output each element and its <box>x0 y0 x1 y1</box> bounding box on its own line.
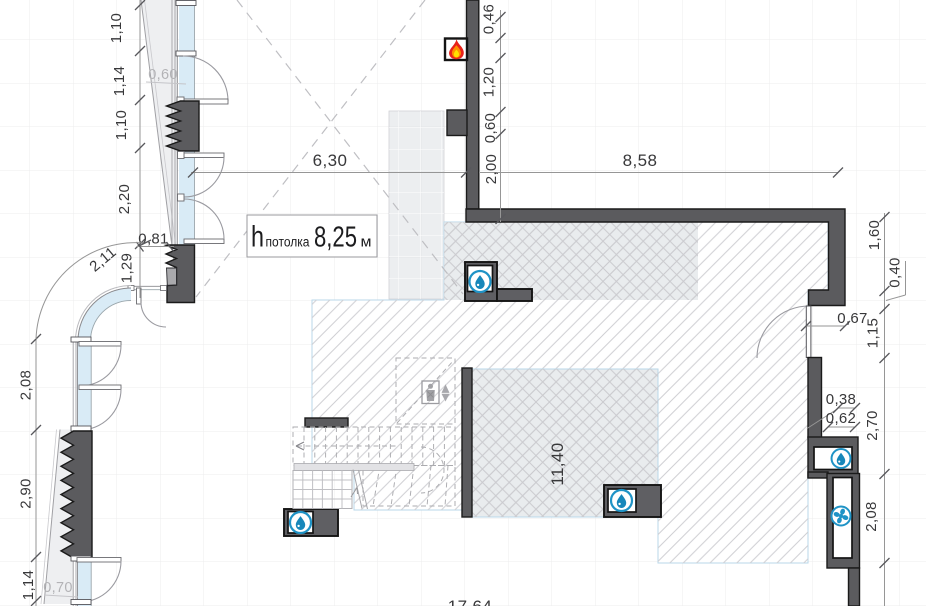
svg-text:17,64: 17,64 <box>448 597 493 606</box>
svg-text:0,60: 0,60 <box>148 67 177 83</box>
svg-text:м: м <box>361 235 372 251</box>
svg-text:0,60: 0,60 <box>482 113 499 143</box>
svg-text:6,30: 6,30 <box>313 151 348 170</box>
svg-text:2,08: 2,08 <box>863 501 880 531</box>
svg-text:1,29: 1,29 <box>119 253 136 283</box>
svg-text:h: h <box>251 221 264 254</box>
svg-text:1,14: 1,14 <box>111 66 128 96</box>
svg-text:8,58: 8,58 <box>623 151 658 170</box>
svg-text:1,14: 1,14 <box>20 570 37 600</box>
svg-text:2,08: 2,08 <box>18 370 35 400</box>
svg-text:11,40: 11,40 <box>548 442 567 485</box>
svg-text:8,25: 8,25 <box>314 222 357 254</box>
svg-text:0,40: 0,40 <box>887 257 904 287</box>
svg-text:2,70: 2,70 <box>864 410 881 440</box>
svg-text:2,00: 2,00 <box>483 154 500 184</box>
svg-text:1,10: 1,10 <box>113 110 130 140</box>
svg-text:0,38: 0,38 <box>826 391 856 408</box>
svg-text:0,46: 0,46 <box>481 4 498 34</box>
svg-text:0,81: 0,81 <box>138 231 168 248</box>
svg-text:2,20: 2,20 <box>116 184 133 214</box>
svg-text:1,60: 1,60 <box>866 220 883 250</box>
svg-text:1,10: 1,10 <box>108 13 125 43</box>
svg-text:потолка: потолка <box>266 235 310 250</box>
svg-text:0,70: 0,70 <box>43 580 72 596</box>
svg-text:0,62: 0,62 <box>826 410 856 427</box>
svg-text:2,90: 2,90 <box>18 478 35 508</box>
svg-text:1,20: 1,20 <box>481 67 498 97</box>
svg-text:0,67: 0,67 <box>837 310 867 327</box>
